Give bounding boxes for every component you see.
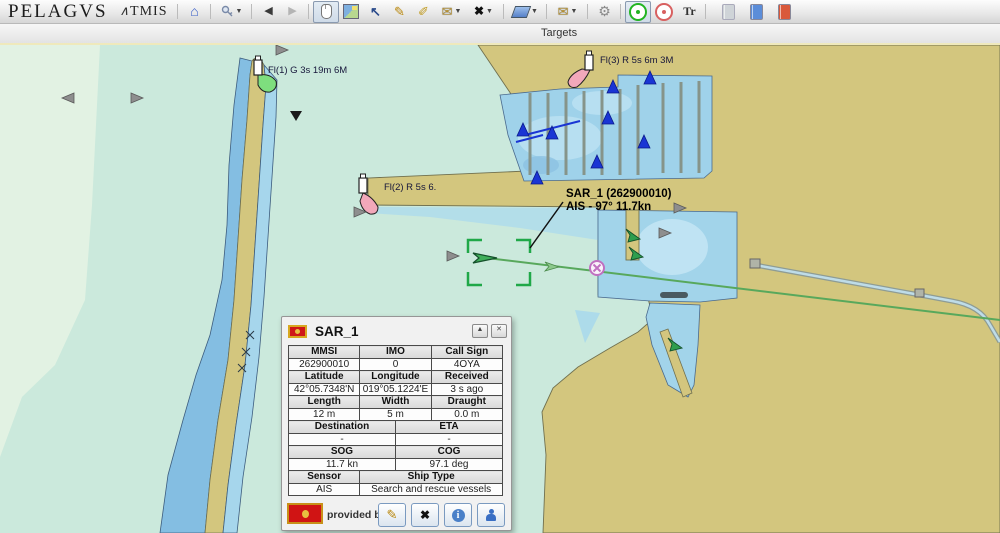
field-value: 5 m (360, 408, 431, 421)
montenegro-flag-image (287, 503, 323, 524)
red-book-icon (778, 4, 791, 20)
gear-icon: ⚙ (598, 5, 611, 18)
field-value: Search and rescue vessels (360, 483, 503, 496)
blue-book-icon (750, 4, 763, 20)
separator (587, 4, 588, 19)
tools-menu-button[interactable]: ✖ ▼ (467, 1, 499, 23)
back-arrow-icon: ◀ (264, 5, 272, 18)
vessel-info-popup: SAR_1 ▲ ✕ MMSIIMOCall Sign26290001004OYA… (281, 316, 512, 531)
field-value: 12 m (289, 408, 360, 421)
light-label: Fl(2) R 5s 6. (384, 182, 436, 193)
event-marker[interactable] (590, 261, 604, 275)
field-header: IMO (360, 346, 431, 359)
tmis-logo-mark: ∧ (120, 3, 130, 19)
forward-arrow-icon: ▶ (288, 5, 296, 18)
popup-header[interactable]: SAR_1 ▲ ✕ (282, 317, 511, 342)
separator (251, 4, 252, 19)
main-toolbar: PELAGVS ∧ TMIS ⌂ ▼ ◀ ▶ (0, 0, 1000, 24)
measure-tool-button[interactable]: ↖ (363, 1, 387, 23)
field-header: ETA (395, 421, 502, 434)
field-value: 4OYA (431, 358, 502, 371)
gray-book-icon (722, 4, 735, 20)
field-header: Latitude (289, 371, 360, 384)
layers-menu-button[interactable]: ▼ (508, 1, 542, 23)
envelope-icon: ✉ (558, 5, 569, 18)
pencil-icon: ✎ (394, 5, 405, 18)
popup-title: SAR_1 (315, 324, 469, 339)
mail-menu-button[interactable]: ✉ ▼ (551, 1, 583, 23)
lighthouse-icon (359, 178, 367, 193)
panel-header-bar: Targets (0, 24, 1000, 45)
field-value: AIS (289, 483, 360, 496)
crew-button[interactable] (477, 503, 505, 527)
separator (546, 4, 547, 19)
dropdown-caret-icon: ▼ (236, 8, 243, 15)
close-button[interactable]: ✕ (491, 324, 507, 338)
field-header: Ship Type (360, 471, 503, 484)
chart-view-button[interactable] (339, 1, 363, 23)
message-button[interactable]: ✉ ▼ (435, 1, 467, 23)
field-value: - (395, 433, 502, 446)
field-header: Sensor (289, 471, 360, 484)
home-icon: ⌂ (190, 5, 198, 18)
forward-button[interactable]: ▶ (280, 1, 304, 23)
field-header: SOG (289, 446, 396, 459)
lighthouse-icon (254, 60, 262, 75)
vessel-tools-button[interactable]: ✖ (411, 503, 439, 527)
tmis-logo: ∧ TMIS (120, 3, 168, 20)
dropdown-caret-icon: ▼ (570, 8, 577, 15)
tools-icon: ✖ (420, 508, 430, 522)
field-value: 97.1 deg (395, 458, 502, 471)
field-header: Width (360, 396, 431, 409)
tools-icon: ✖ (474, 5, 484, 18)
red-target-icon (655, 3, 673, 21)
field-value: 42°05.7348'N (289, 383, 360, 396)
field-header: Draught (431, 396, 502, 409)
montenegro-flag-icon (288, 325, 307, 338)
edit-tool-button[interactable]: ✎ (387, 1, 411, 23)
targets-red-button[interactable] (651, 1, 677, 23)
harbor-shoal-patch (636, 219, 708, 275)
key-icon (221, 5, 234, 18)
field-value: 0 (360, 358, 431, 371)
logbook-blue-button[interactable] (744, 1, 768, 23)
vessel-table: MMSIIMOCall Sign26290001004OYALatitudeLo… (288, 345, 503, 496)
field-header: Longitude (360, 371, 431, 384)
field-value: 11.7 kn (289, 458, 396, 471)
back-button[interactable]: ◀ (256, 1, 280, 23)
field-value: 3 s ago (431, 383, 502, 396)
field-header: COG (395, 446, 502, 459)
home-button[interactable]: ⌂ (182, 1, 206, 23)
edit-icon: ✎ (387, 507, 398, 523)
login-key-button[interactable]: ▼ (215, 1, 247, 23)
separator (503, 4, 504, 19)
field-header: MMSI (289, 346, 360, 359)
info-icon: i (452, 509, 465, 522)
dropdown-caret-icon: ▼ (486, 8, 493, 15)
logbook-gray-button[interactable] (716, 1, 740, 23)
layers-icon (511, 6, 531, 18)
separator (177, 4, 178, 19)
pelagus-tmis-app: PELAGVS ∧ TMIS ⌂ ▼ ◀ ▶ (0, 0, 1000, 533)
separator (705, 4, 706, 19)
targets-panel-label: Targets (541, 27, 577, 39)
road-marker (750, 259, 760, 268)
cursor-tool-icon: ↖ (370, 5, 381, 18)
edit-vessel-button[interactable]: ✎ (378, 503, 406, 527)
annotate-icon: ✐ (418, 5, 429, 18)
person-icon (485, 509, 497, 522)
logbook-red-button[interactable] (772, 1, 796, 23)
target-callout-line1: SAR_1 (262900010) (566, 188, 672, 200)
vessel-info-button[interactable]: i (444, 503, 472, 527)
lighthouse-icon (585, 55, 593, 70)
marina-deep-patch (523, 156, 559, 174)
dropdown-caret-icon: ▼ (531, 8, 538, 15)
target-callout-line2: AIS - 97° 11.7kn (566, 201, 651, 213)
separator (620, 4, 621, 19)
tracks-button[interactable]: Tr (677, 1, 701, 23)
settings-button[interactable]: ⚙ (592, 1, 616, 23)
field-value: - (289, 433, 396, 446)
field-value: 262900010 (289, 358, 360, 371)
tracks-tr-icon: Tr (683, 4, 695, 19)
field-header: Received (431, 371, 502, 384)
envelope-icon: ✉ (442, 5, 453, 18)
map-image-icon (343, 4, 359, 19)
dropdown-caret-icon: ▼ (454, 8, 461, 15)
field-header: Length (289, 396, 360, 409)
annotate-tool-button[interactable]: ✐ (411, 1, 435, 23)
pan-mouse-tool-button[interactable] (313, 1, 339, 23)
popup-footer: provided by ELI ✎ ✖ i (282, 500, 511, 530)
mouse-icon (321, 4, 332, 19)
field-header: Call Sign (431, 346, 502, 359)
separator (308, 4, 309, 19)
moored-vessel-icon (660, 292, 688, 298)
targets-green-button[interactable] (625, 1, 651, 23)
field-value: 0.0 m (431, 408, 502, 421)
pelagus-logo: PELAGVS (8, 1, 108, 23)
green-target-icon (629, 3, 647, 21)
light-label: Fl(1) G 3s 19m 6M (268, 65, 347, 76)
field-value: 019°05.1224'E (360, 383, 431, 396)
field-header: Destination (289, 421, 396, 434)
road-marker (915, 289, 924, 297)
minimize-button[interactable]: ▲ (472, 324, 488, 338)
light-label: Fl(3) R 5s 6m 3M (600, 55, 673, 66)
separator (210, 4, 211, 19)
